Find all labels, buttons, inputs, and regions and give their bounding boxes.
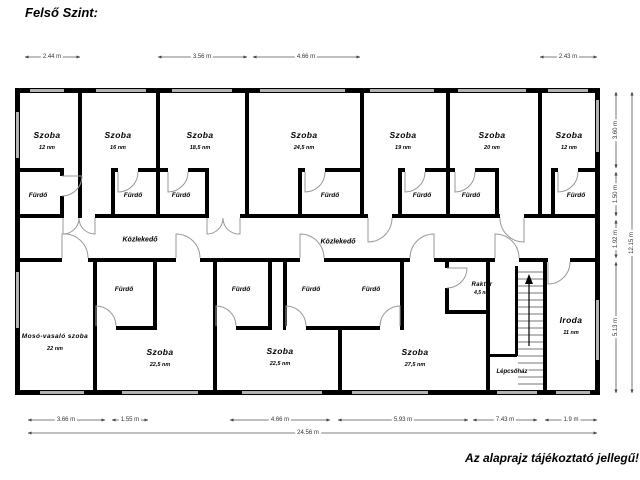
page-title: Felső Szint: bbox=[25, 6, 98, 19]
room-label-iroda: Iroda 11 nm bbox=[560, 316, 583, 336]
room-label-szoba-t7: Szoba 12 nm bbox=[555, 131, 582, 151]
dim-top-1: 2.44 m bbox=[41, 54, 63, 60]
bathroom-label: Fürdő bbox=[124, 193, 142, 200]
dim-top-2: 3.56 m bbox=[191, 54, 213, 60]
floor-plan-page: Felső Szint: Szoba 12 nm Szoba 16 nm Szo… bbox=[0, 0, 640, 480]
bathroom-label: Fürdő bbox=[302, 287, 320, 294]
room-label-szoba-t6: Szoba 20 nm bbox=[478, 131, 505, 151]
dim-right-1: 3.60 m bbox=[613, 119, 619, 141]
room-label-szoba-t1: Szoba 12 nm bbox=[33, 131, 60, 151]
bathroom-label: Fürdő bbox=[362, 287, 380, 294]
dim-bottom-5: 7.43 m bbox=[494, 417, 516, 423]
room-label-raktar: Raktár 4,5 nm bbox=[471, 282, 492, 296]
bathroom-label: Fürdő bbox=[321, 193, 339, 200]
dim-top-3: 4.66 m bbox=[295, 54, 317, 60]
bathroom-label: Fürdő bbox=[29, 193, 47, 200]
bathroom-label: Fürdő bbox=[462, 193, 480, 200]
dim-right-4: 5.13 m bbox=[613, 316, 619, 338]
bathroom-label: Fürdő bbox=[172, 193, 190, 200]
dim-bottom-4: 5.93 m bbox=[392, 417, 414, 423]
room-label-szoba-b3: Szoba 27,5 nm bbox=[401, 348, 428, 368]
corridor-label: Közlekedő bbox=[122, 237, 157, 244]
dim-bottom-1: 3.66 m bbox=[55, 417, 77, 423]
room-label-szoba-b2: Szoba 22,5 nm bbox=[266, 347, 293, 367]
room-label-szoba-t5: Szoba 19 nm bbox=[389, 131, 416, 151]
dim-right-total: 12.15 m bbox=[629, 230, 635, 256]
dim-bottom-3: 4.66 m bbox=[269, 417, 291, 423]
staircase-treads bbox=[518, 272, 543, 384]
bathroom-label: Fürdő bbox=[413, 193, 431, 200]
room-label-szoba-t2: Szoba 16 nm bbox=[104, 131, 131, 151]
room-label-moso-vasalo: Mosó-vasaló szoba 22 nm bbox=[22, 334, 88, 352]
room-label-szoba-t3: Szoba 18,5 nm bbox=[186, 131, 213, 151]
dim-bottom-2: 1.55 m bbox=[119, 417, 141, 423]
dim-right-3: 1.92 m bbox=[613, 228, 619, 250]
dim-right-2: 1.50 m bbox=[613, 183, 619, 205]
bathroom-label: Fürdő bbox=[115, 287, 133, 294]
dim-bottom-6: 1.9 m bbox=[561, 417, 580, 423]
corridor-label: Közlekedő bbox=[320, 239, 355, 246]
footnote: Az alaprajz tájékoztató jellegű! bbox=[465, 452, 639, 464]
dim-bottom-total: 24.56 m bbox=[295, 430, 321, 436]
bathroom-label: Fürdő bbox=[232, 287, 250, 294]
room-label-szoba-b1: Szoba 22,5 nm bbox=[146, 348, 173, 368]
staircase-label: Lépcsőház bbox=[495, 369, 528, 375]
bathroom-label: Fürdő bbox=[567, 193, 585, 200]
dim-top-4: 2.43 m bbox=[557, 54, 579, 60]
room-label-szoba-t4: Szoba 24,5 nm bbox=[290, 131, 317, 151]
